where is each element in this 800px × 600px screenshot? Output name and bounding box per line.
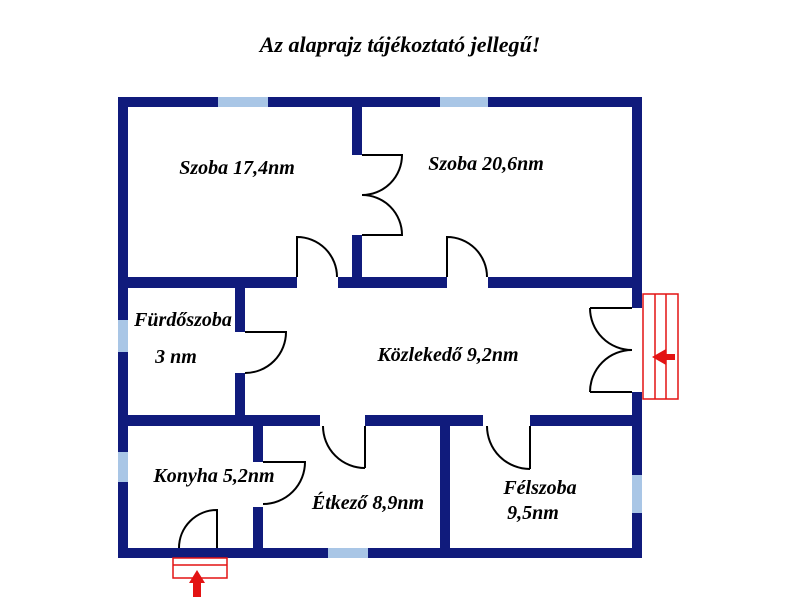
room-label-felszoba-area: 9,5nm	[507, 502, 559, 524]
wall-bathroom-upper	[235, 288, 245, 332]
wall-v1-upper	[352, 107, 362, 155]
room-label-etkezo: Étkező 8,9nm	[312, 492, 424, 514]
wall-h1-middle	[338, 277, 447, 288]
door-dining	[323, 426, 365, 468]
window-szoba1	[218, 97, 268, 107]
floor-plan-page: Az alaprajz tájékoztató jellegű!	[0, 0, 800, 600]
entrance-steps-right-lines	[655, 294, 666, 399]
window-bathroom	[118, 320, 128, 352]
entrance-steps-right	[643, 294, 678, 399]
wall-h1-left	[128, 277, 297, 288]
room-label-felszoba: Félszoba	[503, 477, 576, 499]
wall-outer-bottom	[118, 548, 642, 558]
wall-h2-right	[530, 415, 632, 426]
wall-outer-top	[118, 97, 642, 107]
door-kitchen-exterior	[179, 510, 217, 548]
window-szoba2	[440, 97, 488, 107]
window-kitchen	[118, 452, 128, 482]
entrance-right	[643, 294, 678, 399]
room-label-konyha: Konyha 5,2nm	[153, 465, 274, 487]
room-label-furdoszoba: Fürdőszoba	[134, 309, 232, 331]
door-main-entrance	[590, 308, 632, 392]
window-dining	[328, 548, 368, 558]
room-label-furdoszoba-area: 3 nm	[155, 346, 197, 368]
room-label-kozlekedo: Közlekedő 9,2nm	[377, 344, 518, 366]
room-label-szoba1: Szoba 17,4nm	[179, 157, 295, 179]
window-halfroom	[632, 475, 642, 513]
wall-outer-right-upper	[632, 97, 642, 308]
room-label-szoba2: Szoba 20,6nm	[428, 153, 544, 175]
wall-kitchen-upper	[253, 426, 263, 462]
wall-dining-halfroom	[440, 426, 450, 548]
entrance-bottom	[173, 558, 227, 597]
entrance-arrow-up-icon	[189, 570, 205, 597]
wall-bathroom-lower	[235, 373, 245, 415]
wall-v1-lower	[352, 235, 362, 277]
wall-h1-right	[488, 277, 632, 288]
door-halfroom	[487, 426, 530, 469]
door-between-szoba1-szoba2	[362, 155, 402, 235]
door-szoba1	[297, 237, 337, 277]
wall-h2-middle	[365, 415, 483, 426]
door-bathroom	[245, 332, 286, 373]
door-szoba2	[447, 237, 487, 277]
wall-kitchen-lower	[253, 507, 263, 548]
wall-h2-left	[128, 415, 320, 426]
